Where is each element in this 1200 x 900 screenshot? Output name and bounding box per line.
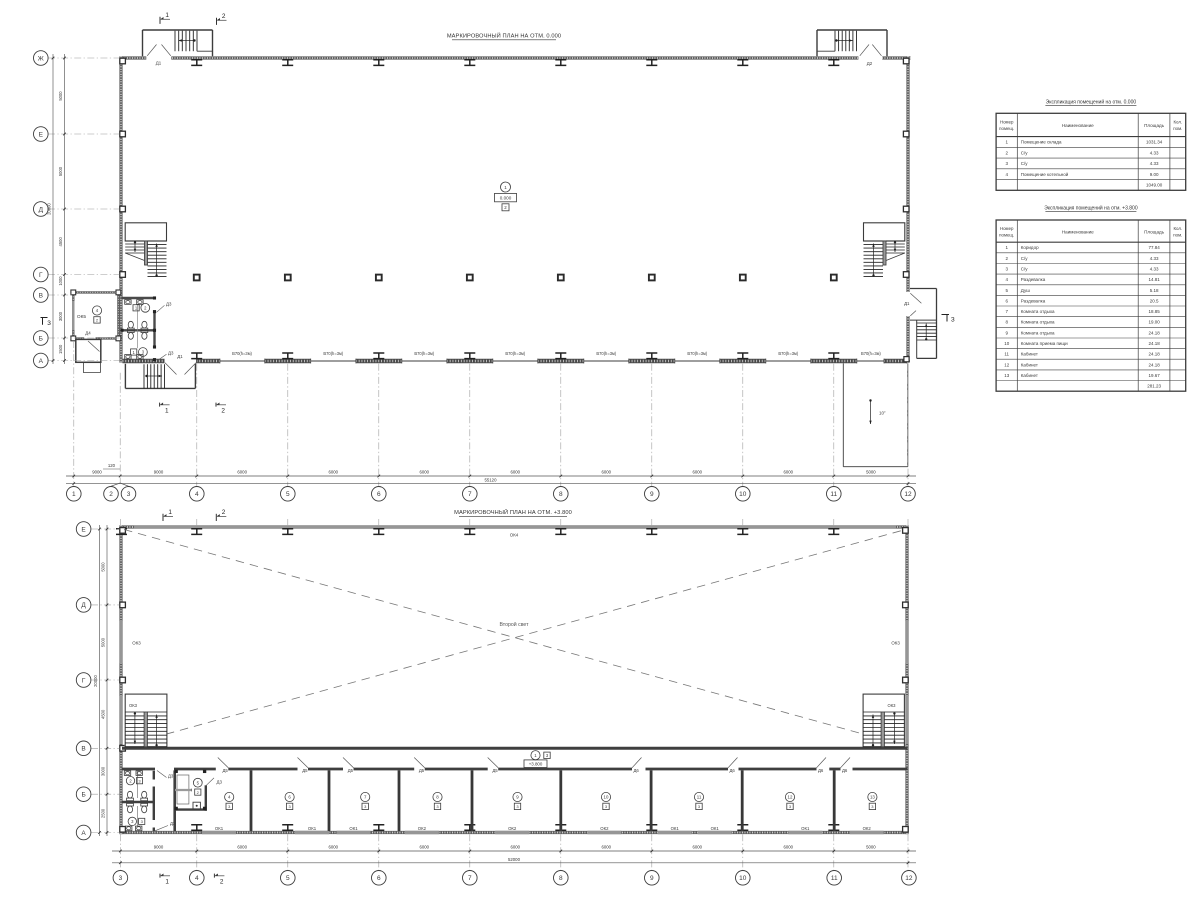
svg-text:В: В	[81, 746, 85, 753]
svg-text:ОК2: ОК2	[508, 826, 517, 831]
svg-text:13: 13	[1004, 373, 1010, 378]
svg-text:Кабинет: Кабинет	[1021, 373, 1038, 378]
svg-text:Д: Д	[39, 206, 44, 213]
svg-text:МАРКИРОВОЧНЫЙ ПЛАН НА ОТМ. 0.0: МАРКИРОВОЧНЫЙ ПЛАН НА ОТМ. 0.000	[447, 32, 561, 40]
svg-text:Раздевалка: Раздевалка	[1021, 277, 1046, 282]
svg-text:24.18: 24.18	[1148, 352, 1160, 357]
svg-text:6000: 6000	[420, 469, 430, 474]
svg-text:0.000: 0.000	[500, 196, 512, 201]
svg-text:120: 120	[108, 463, 116, 468]
svg-text:Е: Е	[39, 131, 44, 138]
svg-text:ОК3: ОК3	[891, 640, 900, 645]
svg-text:14.81: 14.81	[1148, 277, 1160, 282]
svg-text:Д4: Д4	[85, 331, 91, 336]
svg-text:4: 4	[195, 875, 199, 882]
svg-text:5000: 5000	[100, 637, 105, 647]
svg-text:С/у: С/у	[1021, 150, 1029, 155]
svg-text:Экспликация помещений на отм.: Экспликация помещений на отм. +3.800	[1044, 204, 1138, 211]
svg-text:19.67: 19.67	[1148, 373, 1160, 378]
svg-text:ОК3: ОК3	[132, 640, 141, 645]
svg-text:3: 3	[119, 875, 123, 882]
svg-text:Комната отдыха: Комната отдыха	[1021, 330, 1055, 335]
svg-text:МАРКИРОВОЧНЫЙ ПЛАН НА ОТМ. +3.: МАРКИРОВОЧНЫЙ ПЛАН НА ОТМ. +3.800	[454, 508, 572, 516]
svg-text:2: 2	[222, 13, 226, 20]
svg-text:Ж: Ж	[38, 55, 44, 62]
svg-text:ОК1: ОК1	[349, 826, 358, 831]
svg-text:Д6: Д6	[634, 768, 640, 773]
svg-text:Д5: Д5	[492, 768, 498, 773]
svg-text:Кол.: Кол.	[1173, 119, 1182, 124]
svg-text:7: 7	[468, 875, 472, 882]
svg-text:9: 9	[650, 491, 654, 498]
svg-text:4.33: 4.33	[1150, 150, 1159, 155]
svg-text:Д1: Д1	[156, 61, 162, 66]
svg-text:Д5: Д5	[348, 768, 354, 773]
svg-text:Второй свет: Второй свет	[500, 621, 530, 628]
svg-text:6000: 6000	[329, 844, 339, 849]
svg-text:В70(h=3м): В70(h=3м)	[232, 351, 252, 356]
svg-text:Д: Д	[81, 602, 86, 609]
svg-text:4.33: 4.33	[1150, 256, 1159, 261]
svg-text:Д2: Д2	[867, 61, 873, 66]
svg-text:7: 7	[468, 491, 472, 498]
svg-text:С/у: С/у	[1021, 267, 1029, 272]
svg-text:5: 5	[286, 491, 290, 498]
svg-text:6000: 6000	[602, 469, 612, 474]
svg-text:6000: 6000	[693, 469, 703, 474]
svg-text:Г: Г	[82, 677, 86, 684]
svg-text:12: 12	[905, 875, 913, 882]
svg-text:Коридор: Коридор	[1021, 245, 1039, 250]
svg-text:10: 10	[739, 491, 747, 498]
svg-text:6000: 6000	[784, 469, 794, 474]
svg-text:ОК2: ОК2	[863, 826, 872, 831]
svg-text:8: 8	[559, 491, 563, 498]
svg-text:6: 6	[377, 875, 381, 882]
svg-text:Д1: Д1	[904, 301, 910, 306]
svg-text:Д5: Д5	[302, 768, 308, 773]
svg-text:Комната отдыха: Комната отдыха	[1021, 320, 1055, 325]
svg-text:1: 1	[165, 879, 169, 886]
svg-text:6000: 6000	[784, 844, 794, 849]
svg-text:Номер: Номер	[1000, 119, 1014, 124]
svg-text:9.00: 9.00	[1150, 172, 1159, 177]
svg-text:24.18: 24.18	[1148, 362, 1160, 367]
svg-text:9000: 9000	[154, 844, 164, 849]
svg-text:ОК3: ОК3	[887, 703, 896, 708]
svg-text:10°: 10°	[879, 411, 886, 416]
svg-text:1: 1	[168, 509, 172, 516]
svg-text:Комната приема пищи: Комната приема пищи	[1021, 341, 1068, 346]
svg-text:10: 10	[739, 875, 747, 882]
svg-text:5000: 5000	[866, 844, 876, 849]
svg-text:20.5: 20.5	[1150, 298, 1159, 303]
svg-text:Д6: Д6	[842, 768, 848, 773]
svg-text:Е: Е	[81, 526, 86, 533]
svg-text:ОК1: ОК1	[308, 826, 317, 831]
svg-text:Д3: Д3	[168, 774, 174, 779]
svg-text:281.23: 281.23	[1147, 384, 1161, 389]
svg-text:4.33: 4.33	[1150, 161, 1159, 166]
svg-text:24.18: 24.18	[1148, 341, 1160, 346]
svg-text:Д5: Д5	[419, 768, 425, 773]
svg-text:9000: 9000	[154, 469, 164, 474]
svg-text:5000: 5000	[100, 562, 105, 572]
svg-text:8: 8	[559, 875, 563, 882]
svg-text:ОК1: ОК1	[801, 826, 810, 831]
svg-text:Раздевалка: Раздевалка	[1021, 298, 1046, 303]
svg-text:ОК1: ОК1	[671, 826, 680, 831]
svg-text:2: 2	[222, 509, 226, 516]
svg-text:Экспликация помещений на отм.: Экспликация помещений на отм. 0.000	[1046, 98, 1137, 105]
svg-text:Д5: Д5	[222, 768, 228, 773]
svg-text:ОК2: ОК2	[600, 826, 609, 831]
svg-text:5000: 5000	[866, 469, 876, 474]
svg-text:2: 2	[220, 879, 224, 886]
svg-text:18.85: 18.85	[1148, 309, 1160, 314]
svg-text:5: 5	[286, 875, 290, 882]
svg-text:6000: 6000	[511, 469, 521, 474]
svg-text:ОК5: ОК5	[77, 314, 87, 320]
svg-text:Наименование: Наименование	[1062, 123, 1094, 128]
svg-text:Помещение котельной: Помещение котельной	[1021, 171, 1069, 177]
svg-text:Б: Б	[81, 792, 85, 799]
svg-text:12: 12	[904, 491, 912, 498]
svg-text:Помещение склада: Помещение склада	[1021, 140, 1062, 145]
svg-text:11: 11	[1004, 352, 1009, 357]
svg-text:4.33: 4.33	[1150, 267, 1159, 272]
svg-text:52000: 52000	[508, 857, 521, 862]
svg-text:А: А	[39, 358, 44, 365]
svg-text:Г: Г	[39, 272, 43, 279]
svg-text:19.00: 19.00	[1148, 320, 1160, 325]
svg-text:В70(h=3м): В70(h=3м)	[778, 351, 798, 356]
svg-text:9000: 9000	[92, 469, 102, 474]
svg-text:В70(h=3м): В70(h=3м)	[414, 351, 434, 356]
svg-text:ОК1: ОК1	[215, 826, 224, 831]
svg-text:С/у: С/у	[1021, 161, 1029, 166]
svg-text:В70(h=3м): В70(h=3м)	[505, 351, 525, 356]
svg-text:пом.: пом.	[1173, 126, 1182, 131]
svg-text:В: В	[39, 292, 43, 299]
svg-text:Д6: Д6	[818, 768, 824, 773]
svg-text:12: 12	[788, 795, 793, 800]
svg-text:Д1: Д1	[177, 354, 183, 359]
svg-text:ОК3: ОК3	[129, 703, 138, 708]
svg-text:77.84: 77.84	[1148, 245, 1160, 250]
svg-text:10: 10	[1004, 341, 1010, 346]
svg-text:4500: 4500	[58, 236, 63, 246]
svg-text:Д3: Д3	[217, 780, 223, 785]
svg-text:1: 1	[72, 491, 76, 498]
svg-text:1: 1	[504, 185, 507, 190]
svg-text:+3.800: +3.800	[529, 762, 543, 767]
svg-text:1049.00: 1049.00	[1146, 183, 1163, 188]
svg-text:Б: Б	[39, 335, 43, 342]
svg-text:В70(h=3м): В70(h=3м)	[323, 351, 343, 356]
svg-text:1031.34: 1031.34	[1146, 140, 1163, 145]
svg-text:Площадь: Площадь	[1144, 230, 1165, 235]
svg-text:6000: 6000	[237, 469, 247, 474]
svg-text:13: 13	[870, 795, 875, 800]
svg-text:пом.: пом.	[1173, 233, 1182, 238]
svg-text:2: 2	[109, 491, 113, 498]
svg-text:Наименование: Наименование	[1062, 230, 1094, 235]
svg-text:4: 4	[195, 491, 199, 498]
svg-text:ОК2: ОК2	[418, 826, 427, 831]
svg-text:6000: 6000	[511, 844, 521, 849]
svg-text:6000: 6000	[329, 469, 339, 474]
svg-text:Комната отдыха: Комната отдыха	[1021, 309, 1055, 314]
svg-text:Душ: Душ	[1021, 288, 1030, 293]
svg-text:1000: 1000	[58, 276, 63, 286]
svg-text:ОК4: ОК4	[510, 533, 519, 538]
svg-text:1500: 1500	[58, 344, 63, 354]
svg-text:6000: 6000	[602, 844, 612, 849]
svg-text:9: 9	[650, 875, 654, 882]
svg-text:Номер: Номер	[1000, 226, 1014, 231]
svg-text:Кабинет: Кабинет	[1021, 362, 1038, 367]
svg-text:3: 3	[47, 320, 51, 327]
svg-text:6: 6	[377, 491, 381, 498]
svg-text:11: 11	[831, 875, 838, 882]
svg-text:В70(h=3м): В70(h=3м)	[861, 351, 881, 356]
svg-text:А: А	[81, 830, 86, 837]
svg-text:2500: 2500	[100, 808, 105, 818]
svg-text:6000: 6000	[693, 844, 703, 849]
svg-text:помещ.: помещ.	[999, 126, 1014, 131]
svg-text:В70(h=3м): В70(h=3м)	[596, 351, 616, 356]
svg-text:Кол.: Кол.	[1173, 226, 1182, 231]
svg-text:24.18: 24.18	[1148, 330, 1160, 335]
svg-text:5000: 5000	[58, 166, 63, 176]
svg-text:С/у: С/у	[1021, 256, 1029, 261]
svg-text:Д3: Д3	[168, 350, 174, 355]
svg-text:11: 11	[830, 491, 837, 498]
svg-text:20000: 20000	[93, 675, 98, 687]
svg-text:ОК1: ОК1	[711, 826, 720, 831]
svg-text:6000: 6000	[420, 844, 430, 849]
svg-text:3000: 3000	[58, 311, 63, 321]
svg-text:3: 3	[951, 316, 955, 323]
svg-text:1: 1	[165, 12, 169, 19]
svg-text:В70(h=3м): В70(h=3м)	[687, 351, 707, 356]
svg-text:12: 12	[1004, 362, 1010, 367]
svg-text:2: 2	[221, 408, 225, 415]
svg-text:1: 1	[165, 408, 169, 415]
svg-text:5000: 5000	[58, 91, 63, 101]
svg-text:6000: 6000	[237, 844, 247, 849]
svg-text:Площадь: Площадь	[1144, 123, 1165, 128]
svg-text:5.18: 5.18	[1150, 288, 1159, 293]
svg-text:помещ.: помещ.	[999, 233, 1014, 238]
svg-text:3: 3	[127, 491, 131, 498]
svg-text:11: 11	[697, 795, 702, 800]
svg-text:4500: 4500	[100, 709, 105, 719]
svg-text:55120: 55120	[485, 478, 498, 483]
svg-text:Д6: Д6	[730, 768, 736, 773]
svg-text:Д3: Д3	[166, 301, 172, 306]
svg-text:10: 10	[604, 795, 609, 800]
svg-text:3000: 3000	[100, 766, 105, 776]
svg-text:Кабинет: Кабинет	[1021, 352, 1038, 357]
